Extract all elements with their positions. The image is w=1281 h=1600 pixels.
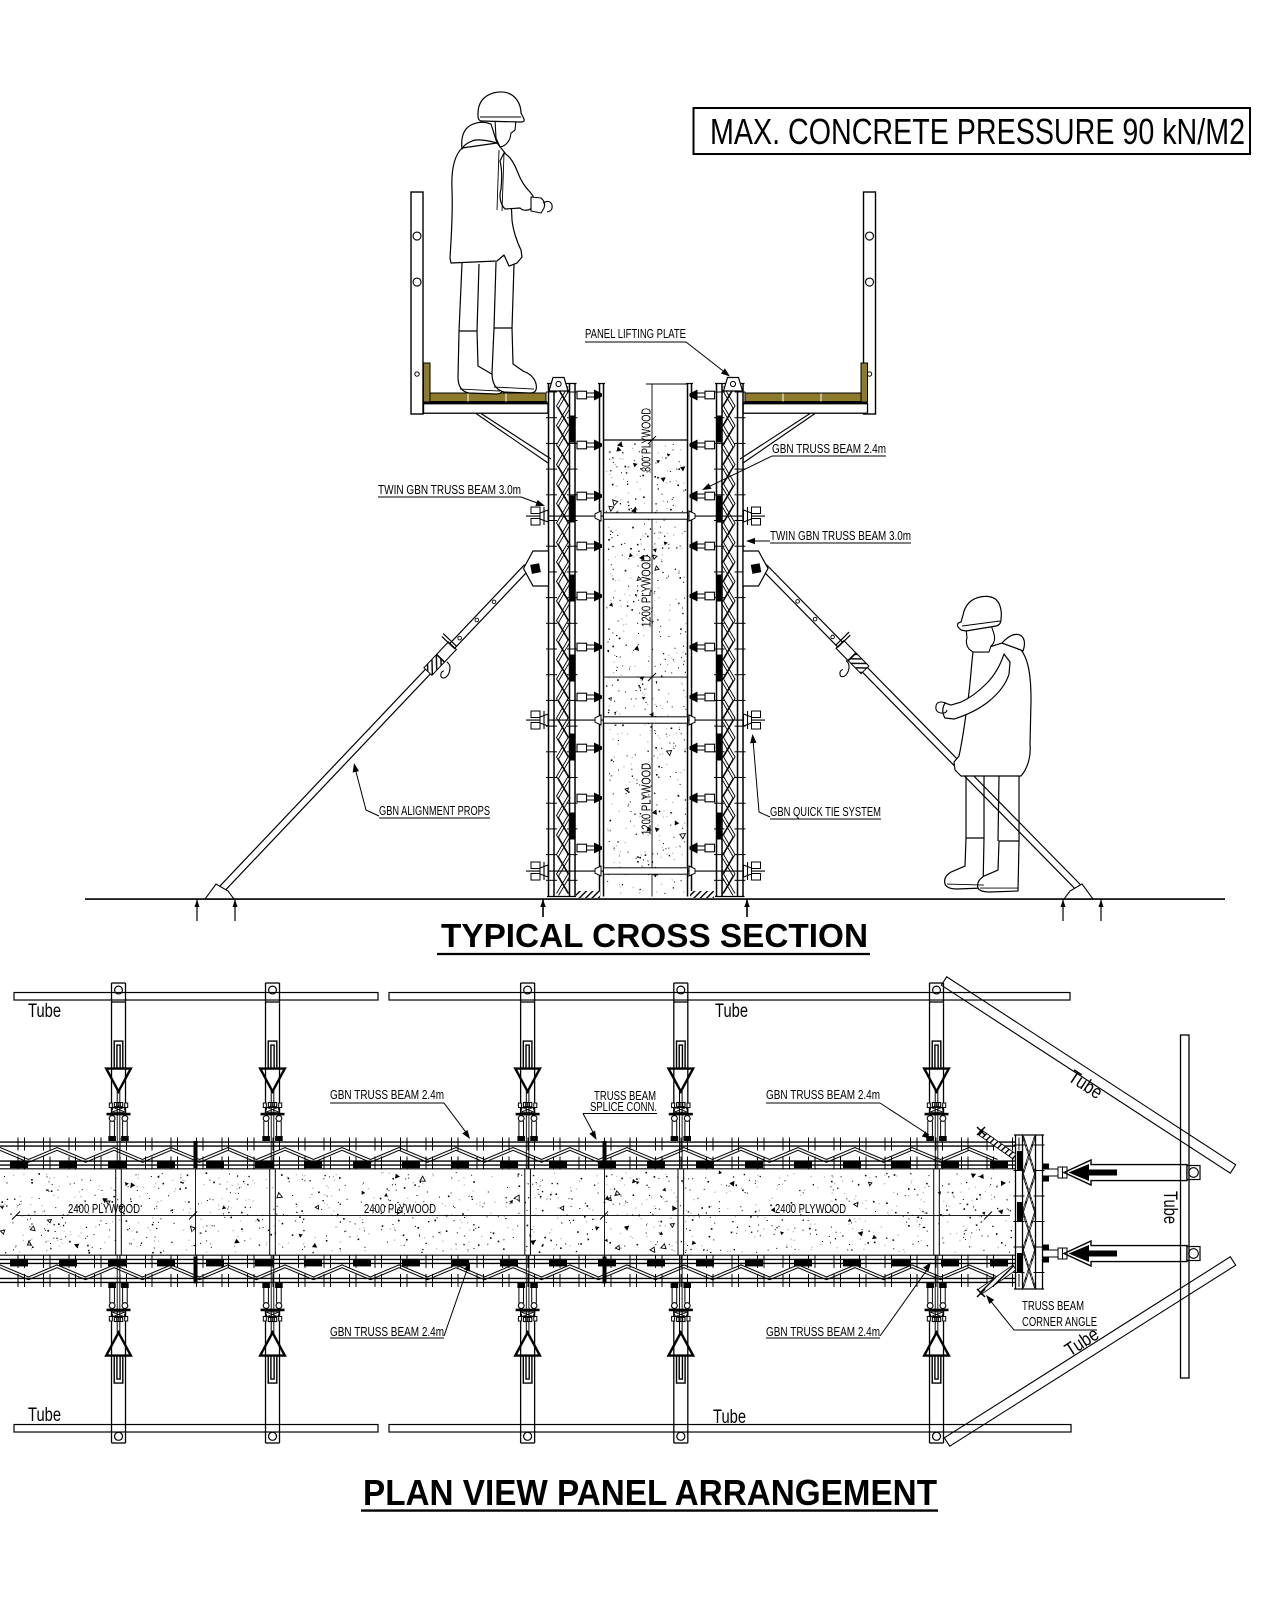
- svg-text:GBN TRUSS BEAM 2.4m: GBN TRUSS BEAM 2.4m: [330, 1088, 444, 1102]
- svg-text:Tube: Tube: [1159, 1191, 1180, 1224]
- svg-text:PLAN VIEW PANEL ARRANGEMENT: PLAN VIEW PANEL ARRANGEMENT: [363, 1472, 937, 1513]
- svg-text:Tube: Tube: [28, 1001, 61, 1022]
- svg-text:2400 PLYWOOD: 2400 PLYWOOD: [68, 1202, 140, 1216]
- svg-text:TRUSS BEAM: TRUSS BEAM: [1022, 1299, 1084, 1313]
- svg-text:Tube: Tube: [28, 1405, 61, 1426]
- svg-text:TYPICAL CROSS SECTION: TYPICAL CROSS SECTION: [441, 917, 868, 954]
- svg-text:TWIN GBN TRUSS BEAM 3.0m: TWIN GBN TRUSS BEAM 3.0m: [378, 483, 521, 497]
- svg-text:GBN ALIGNMENT PROPS: GBN ALIGNMENT PROPS: [379, 804, 490, 818]
- svg-text:GBN TRUSS BEAM 2.4m: GBN TRUSS BEAM 2.4m: [330, 1325, 444, 1339]
- svg-text:CORNER ANGLE: CORNER ANGLE: [1022, 1315, 1097, 1329]
- svg-text:GBN TRUSS BEAM 2.4m: GBN TRUSS BEAM 2.4m: [766, 1088, 880, 1102]
- svg-text:GBN TRUSS BEAM 2.4m: GBN TRUSS BEAM 2.4m: [772, 442, 886, 456]
- svg-text:1200 PLYWOOD: 1200 PLYWOOD: [640, 555, 654, 627]
- svg-text:GBN QUICK TIE SYSTEM: GBN QUICK TIE SYSTEM: [770, 805, 881, 819]
- svg-text:Tube: Tube: [715, 1001, 748, 1022]
- svg-text:GBN TRUSS BEAM 2.4m: GBN TRUSS BEAM 2.4m: [766, 1325, 880, 1339]
- svg-text:TWIN GBN TRUSS BEAM 3.0m: TWIN GBN TRUSS BEAM 3.0m: [770, 529, 911, 543]
- svg-text:SPLICE CONN.: SPLICE CONN.: [590, 1100, 657, 1114]
- svg-text:Tube: Tube: [713, 1407, 746, 1428]
- svg-text:800 PLYWOOD: 800 PLYWOOD: [640, 408, 654, 472]
- svg-text:MAX. CONCRETE PRESSURE 90 kN/M: MAX. CONCRETE PRESSURE 90 kN/M2: [710, 111, 1245, 152]
- svg-text:1200 PLYWOOD: 1200 PLYWOOD: [640, 763, 654, 835]
- svg-text:2400 PLYWOOD: 2400 PLYWOOD: [364, 1202, 436, 1216]
- svg-text:2400 PLYWOOD: 2400 PLYWOOD: [775, 1202, 846, 1216]
- svg-text:PANEL LIFTING PLATE: PANEL LIFTING PLATE: [585, 327, 686, 341]
